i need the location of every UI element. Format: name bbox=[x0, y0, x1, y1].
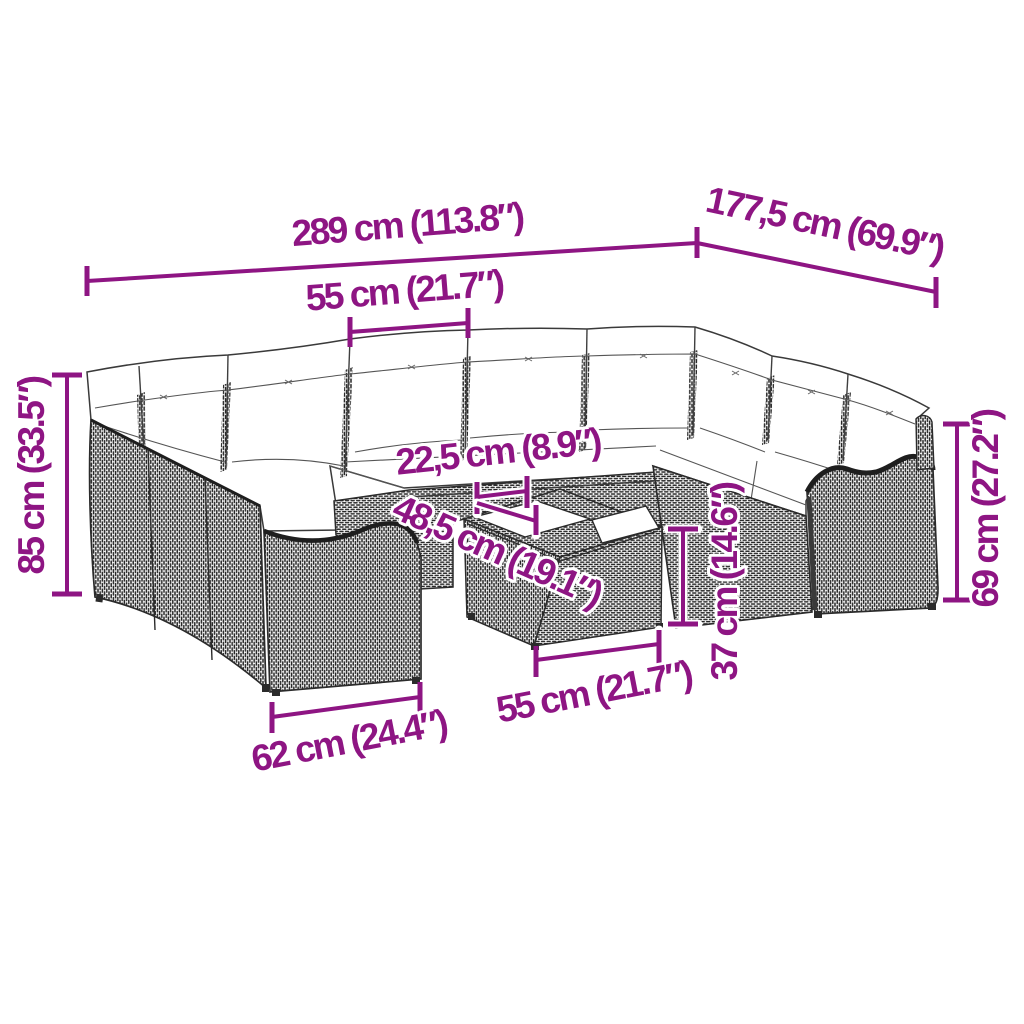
svg-text:85 cm (33.5″): 85 cm (33.5″) bbox=[11, 376, 52, 574]
svg-text:69 cm (27.2″): 69 cm (27.2″) bbox=[965, 409, 1006, 607]
svg-text:37 cm (14.6″): 37 cm (14.6″) bbox=[704, 482, 745, 680]
